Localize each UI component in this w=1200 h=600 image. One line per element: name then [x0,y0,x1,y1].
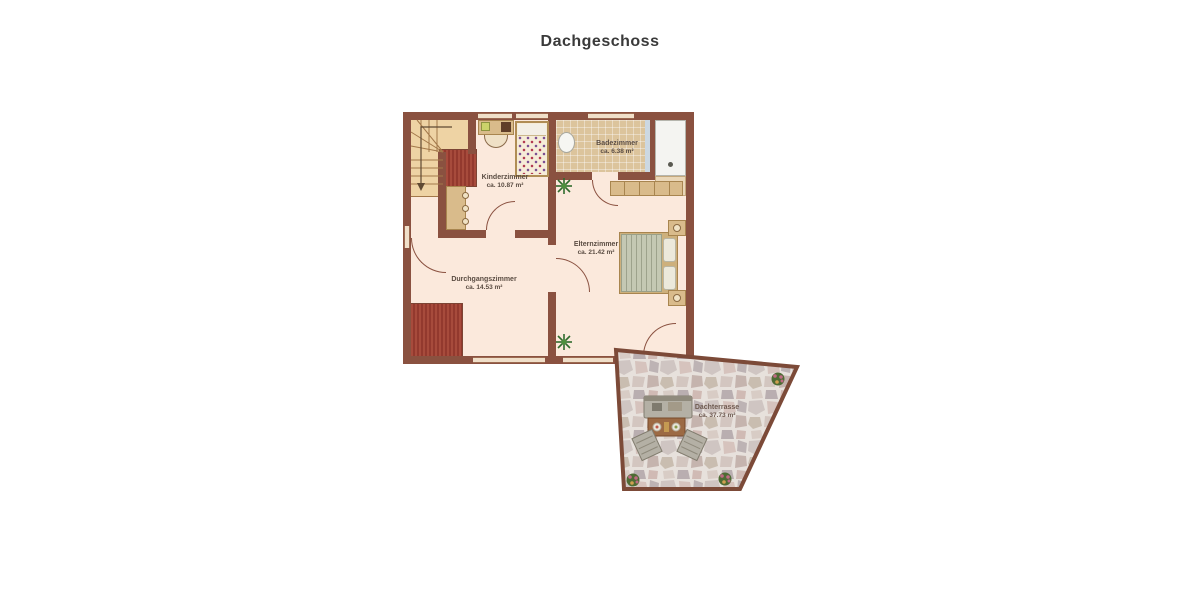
room-label-badezimmer: Badezimmer ca. 6.38 m² [596,140,638,156]
room-area: ca. 14.53 m² [451,284,516,292]
stair-treads [411,120,443,184]
room-name: Kinderzimmer [482,174,529,182]
page-title: Dachgeschoss [0,33,1200,51]
room-area: ca. 21.42 m² [574,249,618,257]
plant-icon [556,334,572,350]
room-label-dachterrasse: Dachterrasse ca. 37.73 m² [695,404,739,420]
terrace-bench [644,396,692,418]
room-label-kinderzimmer: Kinderzimmer ca. 10.87 m² [482,174,529,190]
room-area: ca. 6.38 m² [596,148,638,156]
room-name: Durchgangszimmer [451,276,516,284]
room-name: Badezimmer [596,140,638,148]
flower-pot-icon [719,473,732,486]
flower-pot-icon [627,474,640,487]
room-name: Elternzimmer [574,241,618,249]
flower-pot-icon [772,373,785,386]
room-label-durchgangszimmer: Durchgangszimmer ca. 14.53 m² [451,276,516,292]
stair-direction-arrow-icon [417,127,452,191]
plan-detail-overlay [403,112,694,364]
plant-icon [556,178,572,194]
room-label-elternzimmer: Elternzimmer ca. 21.42 m² [574,241,618,257]
room-name: Dachterrasse [695,404,739,412]
floorplan-page: Dachgeschoss [0,0,1200,600]
room-area: ca. 37.73 m² [695,412,739,420]
room-area: ca. 10.87 m² [482,182,529,190]
